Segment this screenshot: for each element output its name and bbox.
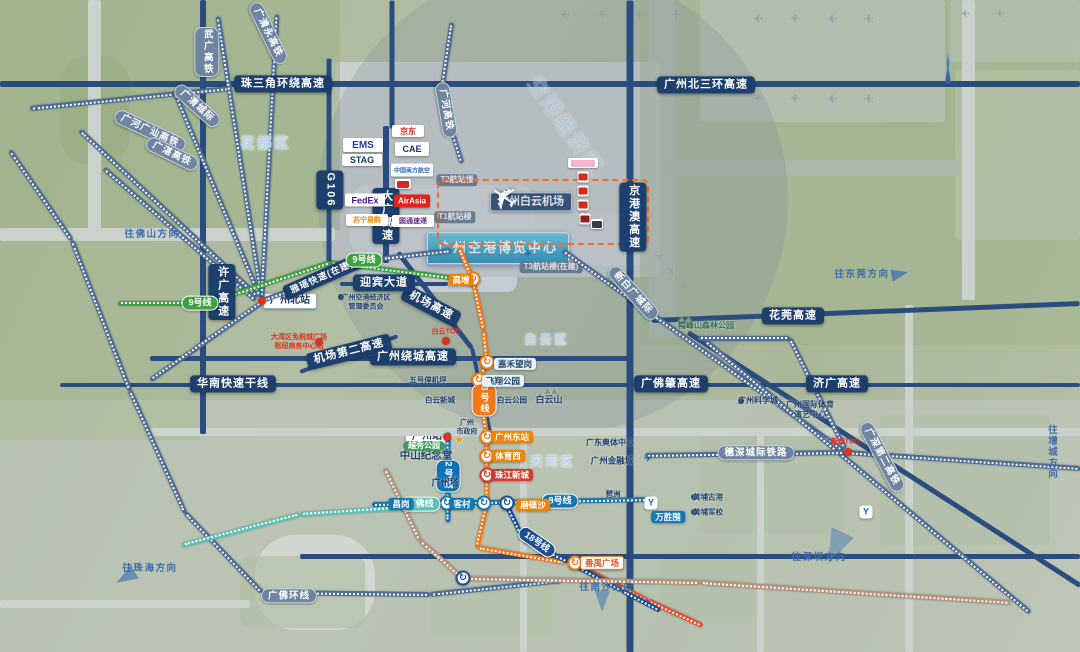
parked-aircraft-icon-12: ✈ [960,7,969,18]
place-label-10: 广州科学城 [738,396,778,406]
minor-road-7 [962,0,975,300]
highway-badge-5: 京港澳高速 [619,183,646,252]
brand-logo-card-3: CAE [395,142,429,156]
place-label-12: 帽峰山森林公园 [678,321,734,331]
metro-station-badge-5: 珠江新城 [491,469,533,481]
place-label-13: 黄埔古港 [693,492,723,501]
direction-label-1: 往东莞方向 [834,266,889,280]
metro-station-badge-6: 昌岗 [388,498,413,510]
tod-project-label-2: 大湾区免税城广场 枢纽商务中心站 [271,333,327,351]
place-label-7: 琶洲 [606,489,621,498]
parked-aircraft-icon-13: ✈ [995,7,1004,18]
place-label-8: 广东奥体中心 [586,438,634,448]
key-site-dot-1 [443,433,451,441]
parked-aircraft-icon-6: ✈ [827,12,837,24]
highway-badge-4: 许广高速 [208,264,235,320]
brand-logo-card-7: 苏宁易购 [346,214,388,226]
logo-glyph [579,201,588,209]
brand-logo-block-1 [568,158,598,168]
district-watermark-0: 花都区 [241,133,292,153]
brand-logo-block-3 [578,186,589,197]
tod-project-label-0: 白云TOD [432,327,461,336]
parked-aircraft-icon-3: ✈ [671,8,681,20]
expressway-road-5 [390,0,395,128]
rail-badge-8: 广佛环线 [261,588,317,603]
brand-logo-card-1: EMS [343,138,383,152]
brand-logo-block-5 [580,214,591,225]
direction-label-4: 往南沙方向 [579,579,634,593]
metro-transfer-icon-8: ↻ [500,496,515,511]
parked-aircraft-icon-7: ✈ [864,12,874,24]
rail-badge-7: 穗深城际铁路 [717,445,794,460]
minor-road-3 [757,432,764,652]
highway-badge-13: 济广高速 [806,375,868,392]
logo-glyph [579,187,588,195]
brand-logo-block-4 [578,200,589,211]
key-site-dot-2 [442,337,450,345]
metro-line-badge-1: 9号线 [345,253,382,268]
brand-logo-card-6: AirAsia [394,195,430,208]
place-label-5: 白云新城 [425,395,455,404]
parked-aircraft-icon-0: ✈ [560,8,570,20]
rail-junction-icon-0: Y [645,497,658,510]
metro-transfer-icon-9: ↻ [456,571,471,586]
district-watermark-1: 白云区 [524,331,569,348]
place-label-15: 广州 市政府 [457,419,478,437]
highway-badge-14: 广佛肇高速 [634,375,708,392]
airport-transport-map: 广州白云机场 广州空港博览中心 广州北站 广州站 T2航站楼 T1航站楼 T3航… [0,0,1080,652]
place-label-6: 白云公园 [497,395,527,404]
highway-badge-2: G106 [316,171,343,210]
rail-badge-0: 武广高铁 [194,27,219,77]
logo-glyph [579,173,588,181]
highway-badge-1: 广州北三环高速 [657,76,755,93]
logo-glyph [397,181,410,188]
direction-label-0: 往佛山方向 [124,226,179,240]
rail-junction-icon-1: Y [860,506,873,519]
metro-station-badge-9: 番禺广场 [580,556,624,570]
brand-logo-card-4: 中国南方航空 [391,164,433,177]
metro-transfer-icon-7: ↻ [477,496,492,511]
brand-logo-card-0: 京东 [392,125,424,137]
parked-aircraft-icon-2: ✈ [634,8,644,20]
place-label-14: 黄埔军校 [693,507,723,516]
metro-transfer-icon-1: ↻ [480,355,495,370]
parked-aircraft-icon-10: ✈ [827,92,837,104]
brand-logo-block-0 [395,179,411,189]
place-label-16: 广州空港经济区 管理委员会 [342,294,391,312]
highway-badge-11: 华南快速干线 [190,375,276,392]
logo-glyph [592,221,602,228]
direction-label-2: 往深圳方向 [791,549,846,563]
key-site-dot-3 [844,448,852,456]
highway-badge-9: 迎宾大道 [353,274,415,291]
metro-line-badge-2: 3号线 [472,383,497,416]
metro-station-badge-7: 客村 [449,498,474,510]
place-label-3: 白云山 [535,394,562,405]
airport-boundary [437,179,649,245]
highway-badge-12: 花莞高速 [762,307,824,324]
parked-aircraft-icon-11: ✈ [864,92,874,104]
minor-road-2 [150,428,1080,436]
direction-arrow-icon-3: ▶ [593,590,613,612]
key-site-dot-0 [258,297,266,305]
direction-label-5: 往增城方向 [1044,425,1058,480]
brand-logo-card-8: 圆通速递 [392,215,434,227]
terminal-aircraft-icon-0: ✈ [524,250,532,260]
metro-station-badge-0: 高增 [448,274,473,286]
highway-badge-8: 广州绕城高速 [370,348,456,365]
metro-station-badge-10: 万胜围 [651,511,685,523]
logo-glyph [581,215,590,223]
parked-aircraft-icon-4: ✈ [753,12,763,24]
terrain-block-2 [0,230,200,440]
minor-road-6 [0,600,250,608]
metro-station-badge-2: 飞翔公园 [482,375,524,387]
place-label-4: 五号停机坪 [409,375,447,384]
terminal-aircraft-icon-1: ✈ [644,455,652,465]
metro-station-badge-8: 磨碟沙 [516,499,550,511]
parked-aircraft-icon-1: ✈ [597,8,607,20]
brand-logo-block-2 [578,172,589,183]
minor-road-1 [88,0,101,230]
place-label-9: 广州金融城 [591,456,634,467]
rail-line-15 [698,336,790,341]
logo-glyph [571,160,595,167]
metro-station-badge-4: 体育西 [491,450,525,462]
highway-badge-0: 珠三角环绕高速 [234,75,332,92]
parked-aircraft-icon-8: ✈ [753,92,763,104]
place-label-2: 广州塔 [431,477,458,488]
brand-logo-card-2: STAG [342,154,382,166]
parked-aircraft-icon-5: ✈ [790,12,800,24]
place-label-1: 越秀公园 [403,441,445,451]
parked-aircraft-icon-9: ✈ [790,92,800,104]
metro-station-badge-3: 广州东站 [491,431,533,443]
metro-station-badge-1: 嘉禾望岗 [494,358,536,370]
metro-line-badge-0: 9号线 [181,296,218,311]
place-label-0: 中山纪念堂 [400,449,453,462]
brand-logo-card-5: FedEx [345,194,385,207]
tod-project-label-1: 新塘TOD [831,437,860,446]
district-watermark-2: 天河区 [530,453,575,470]
place-label-11: 广州国际体育 演艺中心 [786,400,834,420]
brand-logo-block-6 [591,219,603,229]
direction-label-3: 往珠海方向 [122,560,177,574]
terrain-block-0 [0,0,340,230]
